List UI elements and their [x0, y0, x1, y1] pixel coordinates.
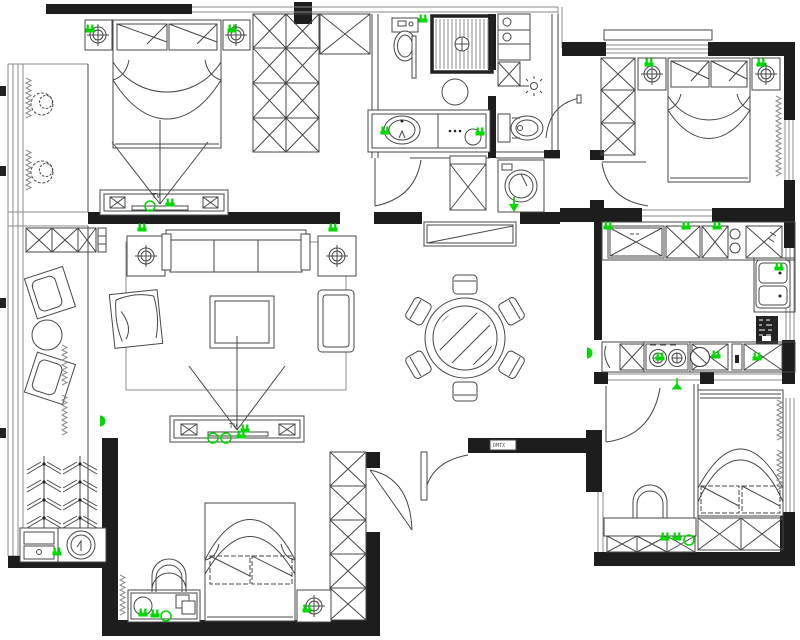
tv-label-bedroom1: TV [152, 192, 161, 200]
toilet-second [498, 114, 543, 142]
fridge [608, 226, 664, 258]
control-panel [756, 316, 778, 344]
drying-rack [27, 456, 61, 530]
double-bed [668, 58, 750, 182]
desk-chair [152, 559, 186, 592]
power-socket-icon [329, 224, 338, 232]
bedroom-top-left: TV [85, 20, 250, 215]
double-bed [698, 390, 783, 516]
power-socket-icon [419, 15, 428, 23]
tv-cabinet-living: TV [170, 336, 304, 442]
double-bed [205, 503, 295, 621]
sofa [162, 230, 310, 272]
laundry-cabinet [20, 528, 106, 562]
entry-wall-label-text: DMTX [493, 443, 505, 449]
wall-light-icon [100, 416, 106, 427]
stool [442, 79, 468, 105]
power-socket-icon [713, 222, 722, 230]
double-bed [113, 20, 221, 148]
power-socket-icon [712, 351, 721, 359]
armchair [109, 290, 162, 349]
power-socket-icon [753, 353, 762, 361]
kitchen-sink [754, 258, 795, 312]
washing-machine [498, 160, 544, 212]
bedroom-top-right [601, 58, 781, 206]
wall-light-icon [587, 348, 593, 359]
balcony-left [20, 78, 106, 562]
power-socket-icon [604, 222, 613, 230]
desk [128, 590, 200, 622]
kitchen [602, 222, 795, 372]
study-chair [633, 485, 667, 518]
tv-label-living: TV [229, 422, 238, 430]
coffee-table [210, 296, 274, 348]
power-socket-icon [682, 222, 691, 230]
floor-plan-drawing: TV [0, 0, 800, 640]
floor-plan-canvas: TV [0, 0, 800, 640]
dining-room [392, 258, 552, 416]
study-desk [604, 518, 696, 552]
power-socket-icon [138, 224, 147, 232]
living-room: TV [109, 230, 356, 442]
drying-rack [63, 456, 97, 530]
gas-stove [644, 342, 690, 372]
shower [432, 16, 492, 72]
bathroom-door-leaf [412, 36, 416, 78]
side-table [32, 320, 62, 350]
